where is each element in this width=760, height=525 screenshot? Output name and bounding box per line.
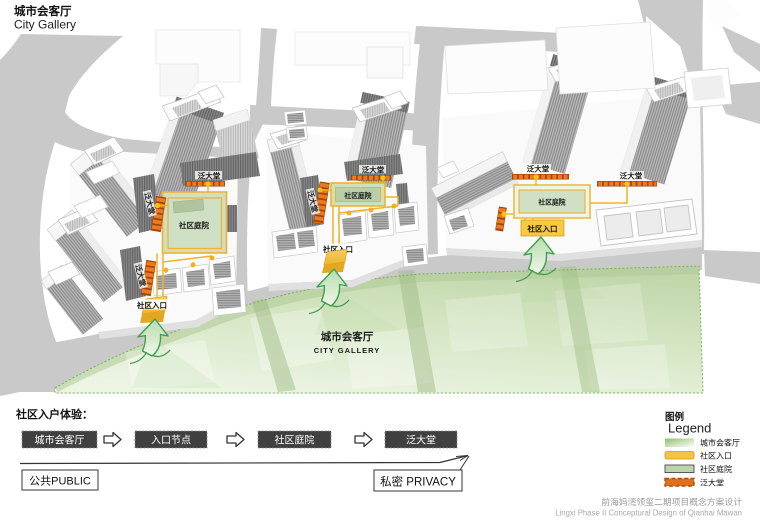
svg-text:Legend: Legend [668, 421, 711, 436]
svg-text:公共PUBLIC: 公共PUBLIC [29, 475, 91, 488]
svg-text:社区入口: 社区入口 [136, 300, 167, 310]
svg-text:前海妈湾领玺二期项目概念方案设计: 前海妈湾领玺二期项目概念方案设计 [601, 496, 742, 507]
svg-text:社区庭院: 社区庭院 [275, 434, 315, 447]
svg-text:社区庭院: 社区庭院 [537, 198, 565, 207]
svg-text:CITY GALLERY: CITY GALLERY [314, 346, 381, 355]
svg-text:城市会客厅: 城市会客厅 [35, 434, 85, 447]
svg-text:社区庭院: 社区庭院 [343, 191, 371, 200]
svg-text:私密 PRIVACY: 私密 PRIVACY [380, 475, 456, 489]
svg-text:泛大堂: 泛大堂 [406, 434, 436, 447]
svg-text:Lingxi Phase II Conceptural De: Lingxi Phase II Conceptural Design of Qi… [555, 509, 742, 518]
svg-text:入口节点: 入口节点 [151, 435, 191, 447]
svg-text:泛大堂: 泛大堂 [527, 164, 550, 174]
svg-text:社区庭院: 社区庭院 [700, 464, 732, 474]
svg-text:City Gallery: City Gallery [14, 18, 76, 32]
svg-text:社区入户体验：: 社区入户体验： [15, 407, 93, 421]
svg-text:泛大堂: 泛大堂 [620, 171, 643, 181]
svg-text:城市会客厅: 城市会客厅 [700, 438, 740, 448]
svg-text:泛大堂: 泛大堂 [700, 478, 724, 488]
svg-text:泛大堂: 泛大堂 [362, 165, 385, 175]
svg-text:社区入口: 社区入口 [700, 451, 732, 461]
svg-text:社区庭院: 社区庭院 [178, 220, 209, 230]
svg-text:泛大堂: 泛大堂 [198, 171, 221, 181]
svg-text:城市会客厅: 城市会客厅 [14, 4, 72, 18]
svg-text:社区入口: 社区入口 [527, 224, 558, 234]
